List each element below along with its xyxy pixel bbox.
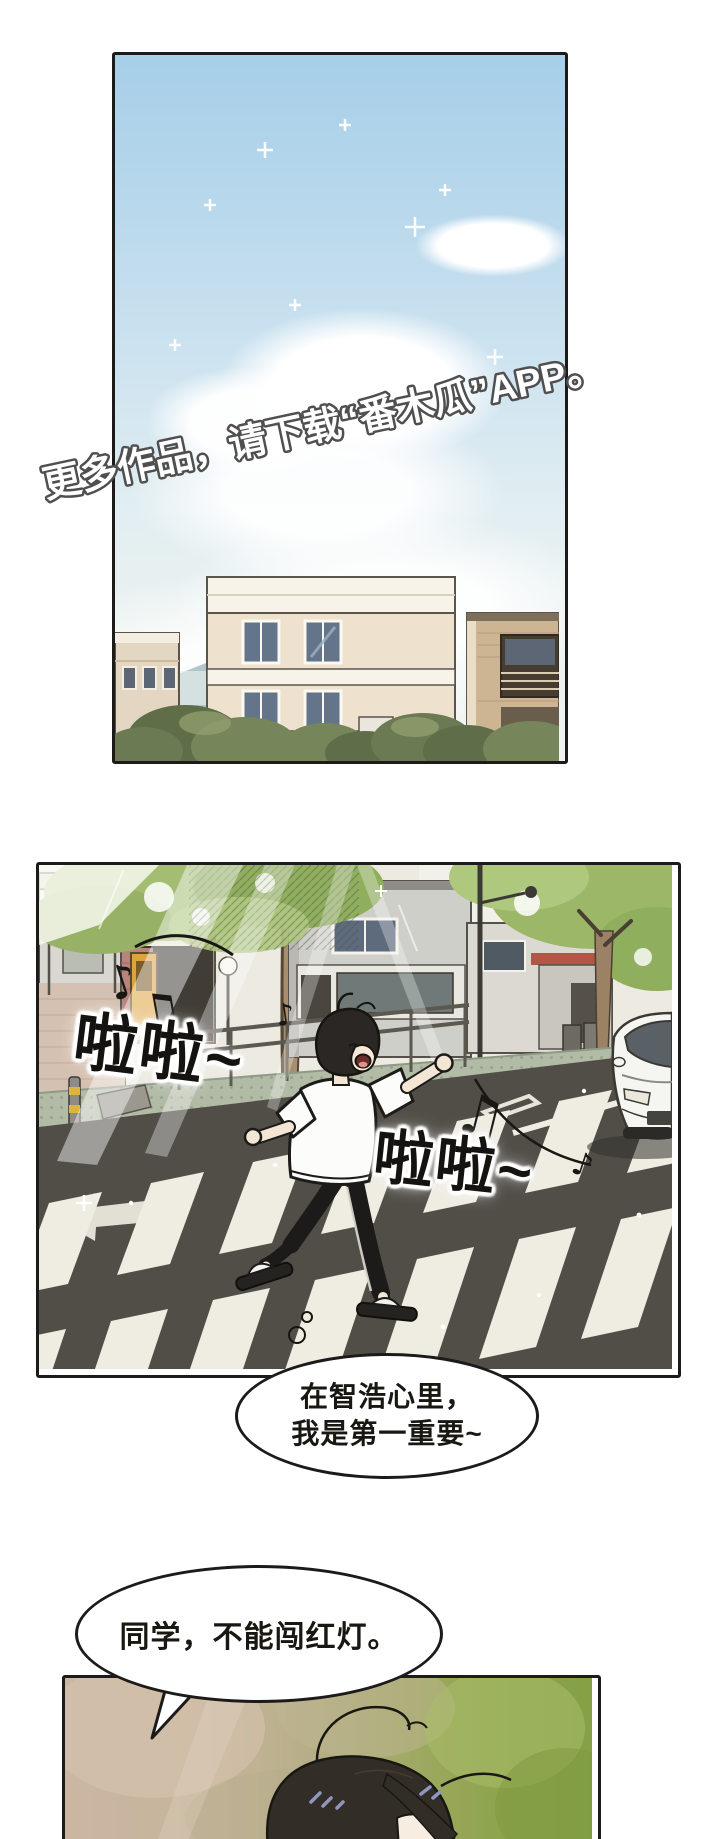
thought-bubble: 在智浩心里， 我是第一重要~ [235,1353,539,1479]
speech-bubble-line: 同学，不能闯红灯。 [120,1612,399,1656]
panel-street-crossing: ♪ ♫ ♪ [36,862,681,1378]
thought-bubble-line: 我是第一重要~ [291,1416,482,1453]
buildings-skyline [115,521,559,761]
comic-page: ♪ ♫ ♪ [0,0,720,1839]
watermark-text: 更多作品，请下载“番木瓜”APP。 [39,347,607,507]
speech-bubble: 同学，不能闯红灯。 [75,1565,443,1703]
street-scene: ♪ ♫ ♪ [39,865,672,1369]
thought-bubble-line: 在智浩心里， [300,1379,474,1416]
sfx-lala-right: 啦啦~ [370,1108,539,1211]
watermark: 更多作品，请下载“番木瓜”APP。 [28,370,688,550]
